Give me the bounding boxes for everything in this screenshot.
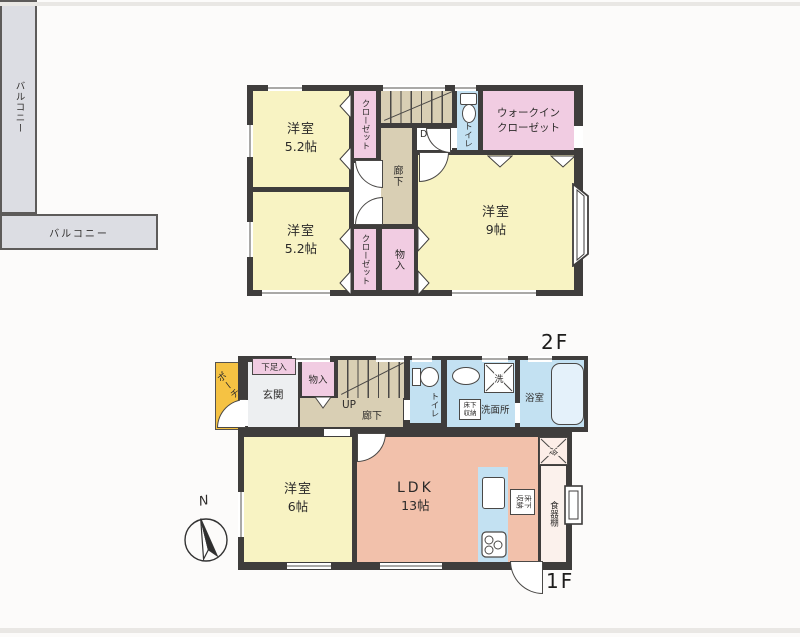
refrigerator-space: 冷 — [539, 437, 568, 465]
window — [238, 492, 244, 537]
floorplan-canvas: バルコニー バルコニー 洋室5.2帖 洋室5.2帖 クローゼット 廊下 DN ト… — [0, 0, 800, 637]
window — [262, 290, 330, 296]
bathroom-label: 浴室 — [520, 360, 544, 404]
underfloor-storage-washroom-label: 床下収納 — [463, 402, 478, 416]
shoe-cabinet-label: 下足入 — [261, 361, 287, 373]
washer-box: 洗 — [484, 363, 514, 393]
door-gap-wic — [574, 126, 583, 148]
cupboard-label: 食器棚 — [548, 501, 560, 527]
bay-window — [572, 183, 593, 267]
hallway-2f-label: 廊下 — [389, 165, 404, 187]
bedroom3-name: 洋室 — [482, 205, 510, 220]
window — [247, 125, 253, 157]
ldk-name: LDK — [397, 480, 434, 496]
scan-edge-bottom — [0, 628, 800, 633]
floor-2f-label: 2F — [541, 330, 569, 354]
window — [528, 356, 552, 362]
wic-line2: クローゼット — [497, 122, 560, 134]
underfloor-storage-washroom: 床下収納 — [459, 399, 481, 420]
storage-1f: 物入 — [302, 362, 334, 396]
closet-bottom-2f: クローゼット — [354, 229, 376, 290]
underfloor-storage-kitchen-label: 床下収納 — [515, 494, 530, 510]
wic-line1: ウォークイン — [497, 107, 560, 119]
balcony-left: バルコニー — [0, 0, 37, 214]
toilet-bowl-icon — [462, 104, 476, 123]
room-bedroom-1f: 洋室6帖 — [244, 437, 352, 562]
entrance-label: 玄関 — [263, 387, 284, 402]
closet-top-label: クローゼット — [359, 99, 371, 150]
side-window — [564, 481, 589, 530]
door-gap-bathroom — [515, 403, 520, 423]
folding-door-marker — [417, 226, 430, 252]
folding-door-marker — [339, 93, 352, 119]
balcony-bottom-label: バルコニー — [49, 225, 109, 240]
door-gap-toilet — [404, 400, 410, 420]
folding-door-marker — [487, 155, 513, 168]
window — [287, 563, 331, 569]
hallway-1f-label: 廊下 — [362, 407, 382, 422]
storage-1f-label: 物入 — [308, 372, 327, 386]
kitchen-sink-icon — [482, 477, 505, 509]
toilet-bowl-icon — [420, 367, 439, 387]
folding-door-marker — [339, 226, 352, 252]
folding-door-marker — [550, 155, 576, 168]
floor-2f: バルコニー バルコニー 洋室5.2帖 洋室5.2帖 クローゼット 廊下 DN ト… — [0, 0, 800, 250]
window — [383, 85, 445, 91]
storage-2f: 物入 — [382, 229, 414, 290]
folding-door-marker — [339, 270, 352, 296]
bedroom1-name: 洋室 — [287, 122, 315, 137]
washroom-label: 洗面所 — [481, 402, 510, 416]
toilet-2f-label: トイレ — [462, 122, 474, 151]
storage-2f-label: 物入 — [391, 249, 406, 271]
cupboard: 食器棚 — [541, 466, 566, 562]
door-gap-bedroom — [324, 429, 350, 436]
closet-top-2f: クローゼット — [354, 91, 376, 158]
stove-icon — [481, 531, 507, 558]
room-bedroom2-2f: 洋室5.2帖 — [253, 192, 349, 290]
refrigerator-label: 冷 — [547, 446, 560, 455]
window — [412, 356, 432, 362]
door-gap-toilet — [452, 128, 457, 148]
bedroom2-size: 5.2帖 — [285, 241, 317, 256]
door-arc-ldk-exit — [510, 561, 543, 594]
balcony-bottom: バルコニー — [0, 214, 158, 250]
window — [376, 356, 404, 362]
bedroom-1f-size: 6帖 — [288, 499, 308, 514]
bathtub-icon — [551, 363, 584, 425]
closet-bottom-label: クローゼット — [359, 234, 371, 285]
folding-door-marker — [417, 270, 430, 296]
hallway-2f: 廊下 — [381, 128, 412, 224]
door-swing-marker — [314, 396, 332, 410]
toilet-1f-label: トイレ — [428, 392, 441, 424]
compass: N — [180, 496, 232, 568]
floor-1f-label: 1F — [546, 569, 574, 593]
bedroom1-size: 5.2帖 — [285, 139, 317, 154]
room-bedroom3-2f: 洋室9帖 — [418, 155, 574, 290]
sink-icon — [452, 367, 480, 385]
balcony-left-label: バルコニー — [12, 81, 26, 134]
bedroom3-size: 9帖 — [486, 222, 506, 237]
underfloor-storage-kitchen: 床下収納 — [510, 489, 535, 515]
door-gap-entrance — [240, 400, 248, 426]
scan-edge-top — [0, 2, 800, 6]
window — [268, 85, 302, 91]
window — [247, 222, 253, 257]
window-balcony-door — [452, 290, 536, 296]
bedroom-1f-name: 洋室 — [284, 482, 312, 497]
window — [455, 85, 476, 91]
window — [482, 356, 508, 362]
window — [380, 563, 442, 569]
folding-door-marker — [339, 146, 352, 172]
room-bedroom1-2f: 洋室5.2帖 — [253, 91, 349, 187]
stairs-up-label: UP — [342, 399, 356, 411]
shoe-cabinet: 下足入 — [252, 358, 296, 375]
ldk-size: 13帖 — [401, 498, 429, 513]
washer-label: 洗 — [494, 372, 503, 385]
bedroom2-name: 洋室 — [287, 224, 315, 239]
walkin-closet-2f: ウォークインクローゼット — [483, 91, 574, 150]
window — [292, 356, 330, 362]
